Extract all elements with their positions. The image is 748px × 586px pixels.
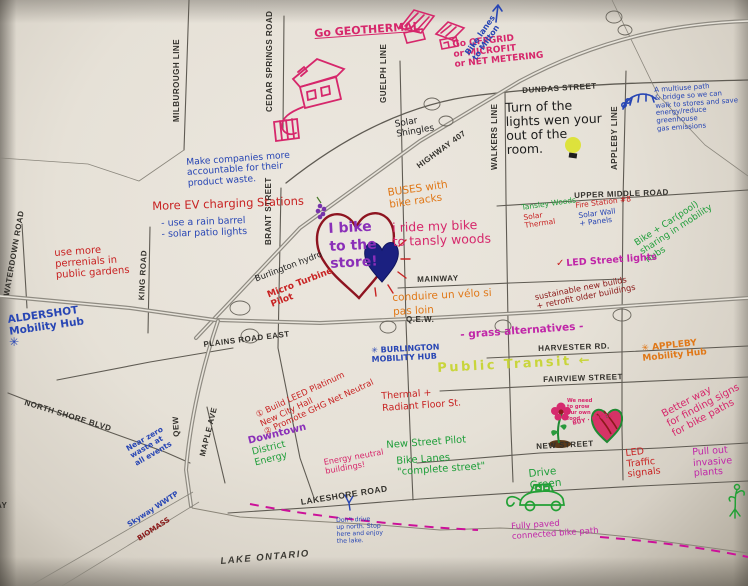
aldershot-asterisk: ✳ — [9, 336, 19, 349]
road-label-cedar-springs: CEDAR SPRINGS ROAD — [265, 11, 274, 112]
map-linework — [0, 0, 748, 586]
note-burlington-mobility-hub: ✳ BURLINGTON MOBILITY HUB — [371, 343, 440, 364]
note-multiuse-path: A multiuse path & bridge so we can walk … — [654, 80, 748, 133]
road-label-fragment: AY — [0, 501, 7, 510]
highway-qew — [0, 296, 748, 323]
note-conduire-velo: conduire un vélo si pas loin — [392, 286, 493, 320]
note-perennials: use more perrenials in public gardens — [54, 243, 130, 282]
road-label-appleby-line: APPLEBY LINE — [610, 106, 619, 170]
note-rain-barrel-solar-lights: - use a rain barrel - solar patio lights — [161, 216, 247, 240]
note-drive-green: Drive Green — [528, 466, 562, 493]
road-label-guelph-line: GUELPH LINE — [379, 44, 388, 103]
road-milburough-line — [184, 0, 189, 150]
road-king-road — [148, 227, 150, 333]
note-turn-off-lights: Turn of the lights wen your out of the r… — [505, 98, 603, 157]
city-boundary — [0, 150, 184, 181]
note-invasive-plants: Pull out invasive plants — [692, 445, 733, 480]
road-cedar-springs — [283, 16, 284, 129]
plant-roots-drawing — [729, 485, 744, 519]
note-ride-to-tansly-woods: i ride my bike to tansly woods — [392, 218, 491, 249]
canal-east — [62, 502, 199, 586]
check-mark: ✓ — [556, 258, 564, 269]
bike-path-dashes — [250, 504, 748, 557]
annotated-burlington-map-photo: MILBUROUGH LINE CEDAR SPRINGS ROAD GUELP… — [0, 0, 748, 586]
note-led-traffic-signals: LED Traffic signals — [625, 446, 661, 481]
note-i-bike-to-store: I bike to the store! — [328, 219, 378, 274]
road-label-qew-south: QEW — [171, 416, 181, 437]
lake-shoreline — [192, 508, 748, 553]
road-label-walkers-line: WALKERS LINE — [490, 104, 499, 170]
road-label-mainway: MAINWAY — [417, 274, 459, 284]
road-label-brant-street: BRANT STREET — [264, 177, 273, 245]
road-waterdown-road — [22, 224, 27, 308]
note-dont-drive-enjoy-lake: Don't drive up north. Stop here and enjo… — [336, 516, 383, 545]
geothermal-house-drawing — [274, 59, 344, 141]
bridge-doodle — [622, 94, 656, 109]
road-label-milburough-line: MILBUROUGH LINE — [172, 39, 181, 122]
canal-west — [30, 492, 193, 586]
